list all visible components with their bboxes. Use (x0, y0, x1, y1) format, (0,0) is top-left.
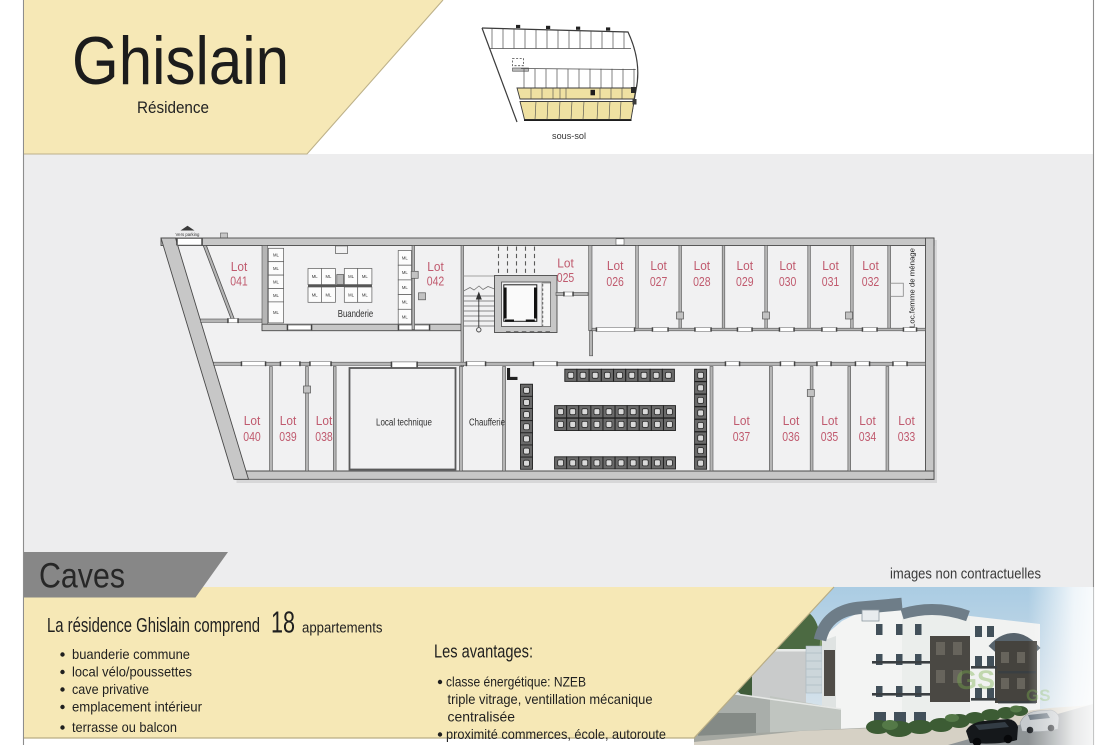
svg-text:036: 036 (782, 429, 800, 444)
svg-text:triple vitrage, ventillation m: triple vitrage, ventillation mécanique (448, 691, 653, 707)
svg-text:035: 035 (821, 429, 839, 444)
svg-text:Lot: Lot (244, 413, 261, 428)
svg-text:ML: ML (402, 270, 408, 275)
svg-text:025: 025 (557, 270, 575, 285)
svg-text:centralisée: centralisée (448, 708, 516, 724)
svg-text:18: 18 (271, 605, 295, 640)
svg-text:029: 029 (736, 274, 754, 289)
svg-text:emplacement intérieur: emplacement intérieur (72, 699, 202, 715)
svg-text:Chaufferie: Chaufferie (469, 418, 505, 429)
svg-text:040: 040 (243, 429, 261, 444)
svg-text:ML: ML (402, 314, 408, 319)
svg-text:ML: ML (312, 292, 318, 297)
svg-text:ML: ML (325, 292, 331, 297)
svg-text:Lot: Lot (862, 258, 879, 273)
svg-text:ML: ML (273, 293, 279, 298)
svg-text:Lot: Lot (316, 413, 333, 428)
svg-text:images non contractuelles: images non contractuelles (890, 566, 1041, 583)
svg-text:030: 030 (779, 274, 797, 289)
svg-text:034: 034 (859, 429, 877, 444)
svg-text:Lot: Lot (280, 413, 297, 428)
svg-text:Lot: Lot (231, 259, 248, 274)
svg-text:ML: ML (273, 253, 279, 258)
svg-text:028: 028 (693, 274, 711, 289)
svg-text:cave privative: cave privative (72, 681, 149, 697)
svg-text:Lot: Lot (737, 258, 754, 273)
svg-text:classe énergétique: NZEB: classe énergétique: NZEB (446, 673, 586, 689)
svg-text:Résidence: Résidence (137, 98, 209, 117)
svg-text:Lot: Lot (694, 258, 711, 273)
svg-text:Lot: Lot (779, 258, 796, 273)
svg-text:Les avantages:: Les avantages: (434, 642, 533, 662)
svg-text:Lot: Lot (821, 413, 838, 428)
svg-text:ML: ML (402, 300, 408, 305)
svg-text:Lot: Lot (557, 256, 574, 271)
svg-text:Lot: Lot (822, 258, 839, 273)
svg-text:Local technique: Local technique (376, 418, 432, 429)
svg-text:Lot: Lot (859, 413, 876, 428)
svg-text:GS: GS (956, 665, 995, 695)
svg-text:sous-sol: sous-sol (552, 131, 586, 142)
svg-text:Lot: Lot (607, 258, 624, 273)
svg-text:037: 037 (733, 429, 751, 444)
svg-text:Lot: Lot (783, 413, 800, 428)
svg-text:local vélo/poussettes: local vélo/poussettes (72, 664, 192, 680)
svg-text:031: 031 (822, 274, 840, 289)
svg-text:ML: ML (348, 292, 354, 297)
svg-text:Caves: Caves (39, 556, 125, 595)
svg-text:039: 039 (279, 429, 297, 444)
svg-text:ML: ML (362, 292, 368, 297)
svg-text:ML: ML (362, 274, 368, 279)
svg-text:033: 033 (898, 429, 916, 444)
svg-text:Ghislain: Ghislain (72, 23, 289, 99)
svg-text:Buanderie: Buanderie (338, 309, 374, 320)
svg-text:Lot: Lot (427, 259, 444, 274)
svg-text:038: 038 (315, 429, 333, 444)
svg-text:ML: ML (348, 274, 354, 279)
svg-text:appartements: appartements (302, 620, 383, 637)
svg-text:La résidence Ghislain comprend: La résidence Ghislain comprend (47, 615, 260, 637)
svg-text:ML: ML (273, 310, 279, 315)
svg-text:ML: ML (273, 279, 279, 284)
svg-text:terrasse ou balcon: terrasse ou balcon (72, 719, 177, 735)
svg-text:Lot: Lot (898, 413, 915, 428)
svg-text:Lot: Lot (650, 258, 667, 273)
svg-text:ML: ML (312, 274, 318, 279)
svg-text:Loc.femme de ménage: Loc.femme de ménage (910, 248, 917, 328)
svg-text:041: 041 (230, 274, 248, 289)
svg-text:buanderie commune: buanderie commune (72, 646, 190, 662)
svg-text:proximité commerces, école, au: proximité commerces, école, autoroute (446, 726, 666, 742)
svg-text:ML: ML (273, 266, 279, 271)
svg-text:ML: ML (402, 255, 408, 260)
svg-text:027: 027 (650, 274, 668, 289)
svg-text:042: 042 (427, 274, 445, 289)
svg-text:Vers parking: Vers parking (176, 232, 200, 237)
svg-text:032: 032 (862, 274, 880, 289)
svg-text:ML: ML (402, 285, 408, 290)
svg-text:ML: ML (325, 274, 331, 279)
svg-text:026: 026 (606, 274, 624, 289)
svg-text:Lot: Lot (733, 413, 750, 428)
